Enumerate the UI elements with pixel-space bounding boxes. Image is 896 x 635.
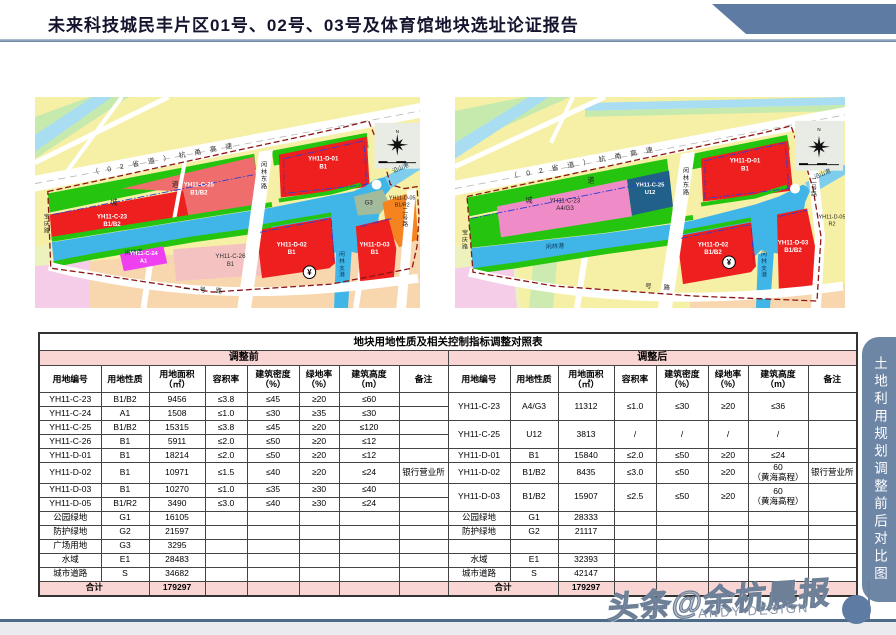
table-cell: [247, 553, 299, 567]
map-after-svg: （02省道）杭甬高速城道宝庆路YH11-C-23A4/G3YH11-C-25U1…: [455, 97, 845, 308]
table-cell: [399, 511, 448, 525]
map-label: G3: [365, 199, 374, 206]
footer-strip: [0, 622, 896, 635]
map-label: 闲林支港: [761, 250, 767, 278]
table-cell: B1/B2: [510, 483, 558, 511]
table-cell: 用地性质: [101, 366, 149, 393]
table-cell: 179297: [558, 581, 614, 596]
table-cell: 8435: [558, 463, 614, 484]
table-cell: [399, 435, 448, 449]
table-cell: [614, 539, 656, 553]
map-label: N: [396, 129, 399, 134]
map-label: 闲林东路: [261, 161, 267, 191]
table-cell: B1: [101, 463, 149, 484]
table-cell: ≤2.0: [205, 435, 247, 449]
table-cell: [399, 497, 448, 511]
table-cell: [247, 567, 299, 581]
table-cell: ≤50: [656, 483, 708, 511]
table-cell: 15840: [558, 449, 614, 463]
table-cell: ≤36: [748, 393, 808, 421]
table-cell: 公园绿地: [39, 511, 101, 525]
table-cell: [247, 525, 299, 539]
table-cell: ≥20: [708, 393, 748, 421]
map-label: 二号路: [811, 179, 817, 199]
table-cell: [339, 581, 399, 596]
side-tab-label: 土地利用规划调整前后对比图: [869, 356, 889, 584]
table-cell: [339, 539, 399, 553]
table-cell: 179297: [149, 581, 205, 596]
table-cell: 21117: [558, 525, 614, 539]
table-cell: [748, 539, 808, 553]
table-cell: 16105: [149, 511, 205, 525]
table-cell: E1: [510, 553, 558, 567]
table-cell: G2: [510, 525, 558, 539]
table-cell: YH11-C-23: [39, 393, 101, 407]
table-cell: YH11-D-05: [39, 497, 101, 511]
table-cell: ≤2.0: [205, 449, 247, 463]
table-cell: [748, 511, 808, 525]
table-cell: B1: [510, 449, 558, 463]
table-cell: 防护绿地: [448, 525, 510, 539]
table-cell: [656, 553, 708, 567]
table-cell: [247, 511, 299, 525]
table-cell: 调整后: [448, 351, 857, 366]
map-label: 二号路: [402, 208, 408, 228]
table-cell: 34682: [149, 567, 205, 581]
table-cell: [205, 567, 247, 581]
map-label: ¥: [727, 258, 732, 267]
table-cell: G1: [101, 511, 149, 525]
table-cell: [808, 421, 857, 449]
table-cell: [708, 539, 748, 553]
table-cell: [339, 567, 399, 581]
table-cell: [708, 511, 748, 525]
table-cell: [247, 539, 299, 553]
header-divider: [0, 39, 896, 42]
table-cell: ≥30: [299, 497, 339, 511]
table-cell: 建筑密度 （%）: [247, 366, 299, 393]
table-cell: 用地性质: [510, 366, 558, 393]
table-cell: ≤45: [247, 421, 299, 435]
table-cell: [614, 553, 656, 567]
table-cell: ≥20: [299, 435, 339, 449]
table-cell: [299, 553, 339, 567]
table-cell: [399, 567, 448, 581]
table-cell: B1: [101, 483, 149, 497]
map-label: 城: [526, 197, 533, 205]
table-cell: ≤50: [656, 449, 708, 463]
table-cell: [808, 393, 857, 421]
map-label: 宝庆路: [44, 212, 50, 234]
table-cell: [299, 581, 339, 596]
table-cell: [299, 567, 339, 581]
table-cell: 防护绿地: [39, 525, 101, 539]
table-cell: YH11-D-03: [448, 483, 510, 511]
table-cell: 15315: [149, 421, 205, 435]
table-cell: ≤50: [656, 463, 708, 484]
table-cell: ≤35: [247, 483, 299, 497]
table-cell: S: [510, 567, 558, 581]
table-cell: ≤3.0: [614, 463, 656, 484]
table-cell: 9456: [149, 393, 205, 407]
table-cell: 32393: [558, 553, 614, 567]
table-cell: B1/B2: [510, 463, 558, 484]
table-cell: 28333: [558, 511, 614, 525]
table-cell: YH11-C-25: [448, 421, 510, 449]
map-label: 道: [588, 176, 595, 185]
table-cell: ≤30: [247, 407, 299, 421]
map-label: 闲林东路: [683, 167, 689, 197]
header-banner-shape: [712, 4, 896, 34]
table-cell: ≤40: [339, 483, 399, 497]
table-cell: 用地面积 （㎡）: [558, 366, 614, 393]
table-cell: ≤1.0: [614, 393, 656, 421]
table-cell: G2: [101, 525, 149, 539]
table-cell: 60 （黄海高程）: [748, 463, 808, 484]
map-label: 道: [172, 180, 179, 189]
table-cell: 11312: [558, 393, 614, 421]
table-cell: [614, 525, 656, 539]
table-cell: /: [748, 421, 808, 449]
table-cell: [399, 525, 448, 539]
table-cell: 地块用地性质及相关控制指标调整对照表: [39, 333, 857, 351]
table-cell: [510, 539, 558, 553]
table-cell: [808, 449, 857, 463]
table-cell: [808, 483, 857, 511]
table-cell: YH11-D-01: [448, 449, 510, 463]
table-cell: YH11-C-24: [39, 407, 101, 421]
map-label: N: [817, 127, 820, 132]
table-cell: 建筑高度 （m）: [339, 366, 399, 393]
table-cell: [399, 407, 448, 421]
map-label: 闲林港: [545, 242, 565, 251]
table-cell: [399, 553, 448, 567]
table-cell: [339, 525, 399, 539]
table-cell: ≤45: [247, 393, 299, 407]
table-cell: B1/R2: [101, 497, 149, 511]
table-cell: [339, 553, 399, 567]
table-cell: ≥20: [708, 463, 748, 484]
report-page: 未来科技城民丰片区01号、02号、03号及体育馆地块选址论证报告: [0, 0, 896, 635]
table-cell: ≤30: [656, 393, 708, 421]
side-tab: 土地利用规划调整前后对比图: [862, 337, 896, 602]
table-cell: ≤24: [339, 463, 399, 484]
map-before-adjustment: （02省道）杭甬高速城道宝庆路YH11-C-23B1/B2YH11-C-25B1…: [35, 97, 420, 308]
table-cell: ≥20: [299, 393, 339, 407]
table-cell: [399, 483, 448, 497]
table-cell: [448, 539, 510, 553]
table-cell: ≤2.5: [614, 483, 656, 511]
table-cell: [247, 581, 299, 596]
map-label: 城: [111, 198, 118, 206]
table-cell: /: [708, 421, 748, 449]
table-cell: 18214: [149, 449, 205, 463]
table-cell: 3295: [149, 539, 205, 553]
table-cell: S: [101, 567, 149, 581]
table-cell: ≥35: [299, 407, 339, 421]
table-cell: ≤12: [339, 435, 399, 449]
table-cell: 用地面积 （㎡）: [149, 366, 205, 393]
table-cell: [808, 525, 857, 539]
table-cell: ≤3.8: [205, 393, 247, 407]
table-cell: ≤120: [339, 421, 399, 435]
table-cell: ≥20: [299, 421, 339, 435]
map-label: 闲林支港: [339, 250, 345, 278]
table-cell: ≤1.0: [205, 483, 247, 497]
table-cell: [205, 525, 247, 539]
table-cell: ≥20: [299, 463, 339, 484]
table-cell: G1: [510, 511, 558, 525]
table-cell: 调整前: [39, 351, 448, 366]
table-cell: 银行营业所: [399, 463, 448, 484]
table-cell: [808, 553, 857, 567]
table-cell: [808, 511, 857, 525]
table-cell: G3: [101, 539, 149, 553]
table-cell: 用地编号: [39, 366, 101, 393]
table-cell: ≥20: [708, 483, 748, 511]
table-cell: 21597: [149, 525, 205, 539]
table-cell: YH11-D-03: [39, 483, 101, 497]
table-cell: 备注: [399, 366, 448, 393]
table-cell: [299, 539, 339, 553]
table-cell: 水域: [448, 553, 510, 567]
table-cell: ≤3.8: [205, 421, 247, 435]
footer-circle-decoration: [842, 595, 871, 624]
table-cell: 广场用地: [39, 539, 101, 553]
table-cell: ≤2.0: [614, 449, 656, 463]
table-cell: 42147: [558, 567, 614, 581]
table-cell: YH11-C-25: [39, 421, 101, 435]
table-cell: 备注: [808, 366, 857, 393]
table-cell: ≤24: [339, 497, 399, 511]
table-cell: [808, 539, 857, 553]
table-cell: [205, 539, 247, 553]
table-cell: 容积率: [205, 366, 247, 393]
table-cell: E1: [101, 553, 149, 567]
table-cell: [399, 393, 448, 407]
table-cell: YH11-D-02: [39, 463, 101, 484]
table-cell: 用地编号: [448, 366, 510, 393]
table-cell: [339, 511, 399, 525]
table-cell: B1: [101, 435, 149, 449]
map-before-svg: （02省道）杭甬高速城道宝庆路YH11-C-23B1/B2YH11-C-25B1…: [35, 97, 420, 308]
table-cell: [205, 511, 247, 525]
table-cell: 10971: [149, 463, 205, 484]
table-cell: [299, 525, 339, 539]
table-cell: 建筑高度 （m）: [748, 366, 808, 393]
table-cell: 绿地率 （%）: [708, 366, 748, 393]
table-cell: [656, 525, 708, 539]
table-cell: 水域: [39, 553, 101, 567]
table-cell: [399, 581, 448, 596]
table-cell: ≤30: [339, 407, 399, 421]
table-cell: [399, 449, 448, 463]
table-cell: ≥20: [299, 449, 339, 463]
table-cell: 银行营业所: [808, 463, 857, 484]
table-cell: [205, 581, 247, 596]
table-cell: [614, 511, 656, 525]
table-cell: /: [614, 421, 656, 449]
map-after-adjustment: （02省道）杭甬高速城道宝庆路YH11-C-23A4/G3YH11-C-25U1…: [455, 97, 845, 308]
table-cell: 绿地率 （%）: [299, 366, 339, 393]
table-cell: [748, 553, 808, 567]
table-cell: 公园绿地: [448, 511, 510, 525]
table-cell: 1508: [149, 407, 205, 421]
table-cell: [656, 511, 708, 525]
table-cell: B1: [101, 449, 149, 463]
table-cell: 城市道路: [448, 567, 510, 581]
table-cell: 10270: [149, 483, 205, 497]
table-cell: 城市道路: [39, 567, 101, 581]
table-cell: [399, 539, 448, 553]
table-cell: A1: [101, 407, 149, 421]
map-label: ¥: [307, 268, 312, 277]
table-cell: 3490: [149, 497, 205, 511]
table-cell: 60 （黄海高程）: [748, 483, 808, 511]
table-cell: U12: [510, 421, 558, 449]
table-cell: 15907: [558, 483, 614, 511]
table-cell: 容积率: [614, 366, 656, 393]
table-cell: 5911: [149, 435, 205, 449]
table-cell: [708, 525, 748, 539]
map-label: 宝庆路: [462, 228, 468, 250]
table-cell: [656, 539, 708, 553]
table-cell: ≥30: [299, 483, 339, 497]
table-cell: ≤50: [247, 435, 299, 449]
page-title: 未来科技城民丰片区01号、02号、03号及体育馆地块选址论证报告: [48, 11, 579, 36]
table-cell: [558, 539, 614, 553]
table-cell: B1/B2: [101, 393, 149, 407]
table-cell: ≤3.0: [205, 497, 247, 511]
table-cell: 28483: [149, 553, 205, 567]
table-cell: ≤40: [247, 497, 299, 511]
table-cell: YH11-D-02: [448, 463, 510, 484]
land-use-comparison-table: 地块用地性质及相关控制指标调整对照表调整前调整后用地编号用地性质用地面积 （㎡）…: [38, 332, 858, 597]
table-cell: A4/G3: [510, 393, 558, 421]
table-cell: ≤1.5: [205, 463, 247, 484]
table-cell: ≤60: [339, 393, 399, 407]
table-cell: YH11-D-01: [39, 449, 101, 463]
table-cell: YH11-C-26: [39, 435, 101, 449]
table-cell: B1/B2: [101, 421, 149, 435]
table-cell: [299, 511, 339, 525]
table-cell: [708, 553, 748, 567]
table-cell: ≥20: [708, 449, 748, 463]
table-cell: ≤40: [247, 463, 299, 484]
table-cell: [205, 553, 247, 567]
table-cell: ≤24: [748, 449, 808, 463]
table-cell: YH11-C-23: [448, 393, 510, 421]
table-cell: /: [656, 421, 708, 449]
table-cell: 3813: [558, 421, 614, 449]
table-cell: ≤50: [247, 449, 299, 463]
table-cell: ≤1.0: [205, 407, 247, 421]
table-cell: [748, 525, 808, 539]
table-cell: 合计: [39, 581, 149, 596]
table-cell: 建筑密度 （%）: [656, 366, 708, 393]
table-cell: ≤12: [339, 449, 399, 463]
table-cell: 合计: [448, 581, 558, 596]
table-cell: [399, 421, 448, 435]
